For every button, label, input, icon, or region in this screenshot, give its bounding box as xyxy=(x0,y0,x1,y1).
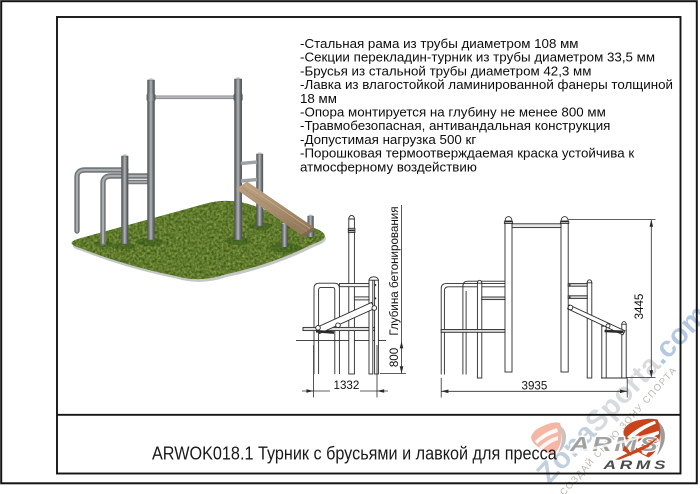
svg-text:3935: 3935 xyxy=(522,379,548,392)
svg-text:Глубина бетонирования: Глубина бетонирования xyxy=(388,206,401,335)
svg-text:800: 800 xyxy=(388,348,401,367)
svg-text:атмосферному воздействию: атмосферному воздействию xyxy=(300,159,477,174)
svg-text:-Лавка из влагостойкой ламинир: -Лавка из влагостойкой ламинированной фа… xyxy=(300,77,673,92)
svg-text:ARMS: ARMS xyxy=(602,458,669,472)
svg-text:3445: 3445 xyxy=(633,294,646,320)
svg-text:ARWOK018.1 Турник с брусьями и: ARWOK018.1 Турник с брусьями и лавкой дл… xyxy=(152,442,557,463)
svg-text:1332: 1332 xyxy=(334,379,360,392)
